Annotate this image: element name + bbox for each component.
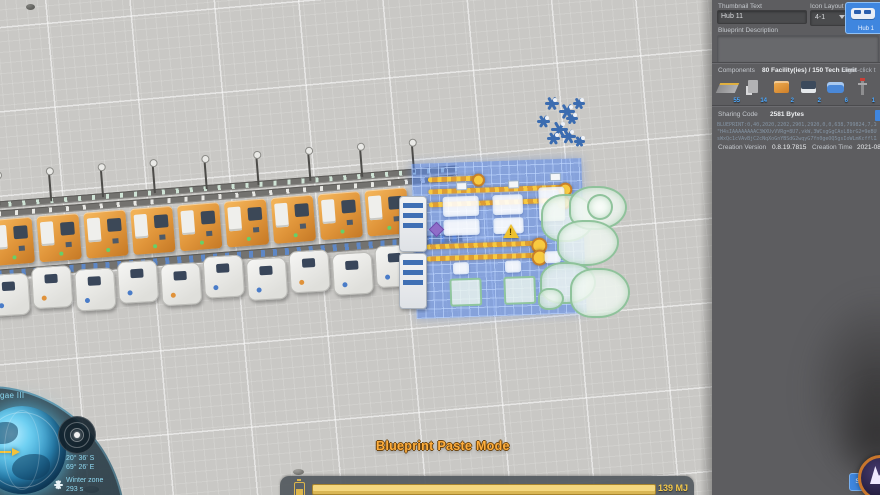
ghost-blob — [570, 268, 630, 318]
factory-building — [74, 267, 116, 311]
ghost-building — [443, 219, 480, 236]
code-line: "H4sIAAAAAAAAC3WXUvVVRg=8U7,vkW,3WCsgGgC… — [717, 129, 877, 136]
energy-fill — [312, 484, 656, 495]
factory-building — [332, 252, 374, 296]
smelter-tile[interactable]: 2 — [796, 77, 823, 97]
assembling-machine-icon — [774, 81, 789, 93]
smelter-icon — [801, 81, 816, 93]
blue-plant — [537, 113, 550, 126]
ghost-sorter — [550, 173, 561, 181]
components-hint: Right-click t — [842, 67, 876, 74]
component-count: 1 — [872, 98, 875, 104]
divider — [712, 105, 880, 106]
sharing-code-size: 2581 Bytes — [770, 111, 804, 118]
assembling-machine — [224, 198, 269, 247]
assembling-machine — [177, 202, 222, 251]
ghost-belt — [428, 176, 478, 183]
paste-mode-label: Blueprint Paste Mode — [376, 439, 510, 453]
component-count: 2 — [818, 98, 821, 104]
zone-label: Winter zone — [66, 476, 103, 485]
sharing-code-label: Sharing Code — [718, 111, 758, 118]
ghost-building — [453, 262, 469, 275]
logistics-distributor-icon — [827, 82, 844, 93]
ghost-building-cluster — [538, 256, 630, 322]
code-line: sWxQc1cVAvBjC2cNqXoGnYBSdG2wqyG7Yn0geOQ5… — [717, 136, 877, 143]
ghost-belt-endpoint — [472, 173, 485, 186]
ghost-sorter — [508, 180, 519, 188]
assembling-machine — [83, 209, 128, 258]
ghost-building — [505, 260, 521, 273]
conveyor-belt-tile[interactable]: 55 — [715, 77, 742, 97]
ghost-blob — [538, 288, 564, 310]
latitude: 20° 36' S — [66, 454, 94, 463]
tesla-tower-icon — [861, 78, 864, 95]
panel-shadow — [700, 0, 712, 495]
description-label: Blueprint Description — [718, 27, 778, 34]
energy-value: 139 MJ — [658, 483, 688, 493]
logistics-station — [399, 253, 427, 309]
blue-plant — [573, 96, 585, 108]
player-position-marker — [12, 448, 20, 456]
assembling-machine — [0, 217, 35, 266]
energy-bar: 139 MJ — [280, 476, 694, 495]
factory-building — [160, 262, 202, 306]
landmass — [12, 454, 50, 480]
factory-building — [117, 260, 159, 304]
thumbnail-text-label: Thumbnail Text — [718, 3, 762, 10]
warning-icon — [503, 224, 519, 238]
icon-layout-dropdown[interactable]: 4-1 — [810, 10, 849, 26]
assembling-machine — [318, 191, 363, 240]
blueprint-icon-button[interactable]: Hub 1 — [845, 2, 880, 34]
icon-layout-label: Icon Layout — [810, 3, 844, 10]
icon-layout-value: 4-1 — [815, 14, 825, 21]
components-label: Components — [718, 67, 755, 74]
zone-time: 293 s — [66, 485, 103, 494]
code-line: BLUEPRINT:0,40,2020,2202,2901,2920,0,0,6… — [717, 122, 877, 129]
sorter-icon — [748, 80, 758, 93]
season-icon — [54, 480, 63, 489]
planet-name: gae III — [0, 391, 24, 400]
ghost-belt — [427, 253, 539, 262]
assembling-machine — [36, 213, 81, 262]
component-count: 55 — [733, 98, 740, 104]
star-dot — [74, 432, 80, 438]
ghost-belt — [426, 241, 538, 250]
factory-building — [0, 273, 31, 317]
battery-icon — [294, 482, 305, 495]
component-list: 55142261 — [715, 77, 879, 101]
logistics-distributor-tile[interactable]: 6 — [823, 77, 850, 97]
ghost-building — [492, 194, 523, 215]
factory-building — [202, 254, 244, 298]
thumbnail-text-input[interactable] — [717, 10, 807, 24]
divider — [712, 62, 880, 63]
game-viewport[interactable]: Blueprint Paste Mode 139 MJ gae III 20° … — [0, 0, 880, 495]
sorter-tile[interactable]: 14 — [742, 77, 769, 97]
creation-version-label: Creation Version — [718, 144, 766, 151]
assembling-machine-tile[interactable]: 2 — [769, 77, 796, 97]
conveyor-belt-icon — [716, 83, 739, 93]
logistics-bot-icon — [851, 8, 875, 19]
component-count: 2 — [791, 98, 794, 104]
factory-building — [288, 249, 330, 293]
coordinates: 20° 36' S 69° 26' E — [66, 454, 94, 472]
ghost-blob — [587, 194, 613, 220]
ghost-building — [443, 196, 480, 217]
orbit-widget — [58, 416, 96, 454]
ghost-sorter — [456, 182, 467, 190]
landmass — [0, 422, 18, 444]
blue-plant — [547, 130, 560, 143]
creation-time-label: Creation Time — [812, 144, 852, 151]
rock — [293, 469, 304, 475]
blueprint-inspector-panel: Thumbnail Text Icon Layout 4-1 Hub 1 Blu… — [712, 0, 880, 495]
ghost-building — [503, 276, 536, 305]
creation-version-value: 0.8.19.7815 — [772, 144, 806, 151]
blue-plant — [545, 95, 559, 109]
description-textarea[interactable] — [717, 35, 879, 63]
rock — [26, 4, 35, 10]
creation-time-value: 2021-08-03 1 — [857, 144, 880, 151]
copy-code-button[interactable] — [875, 110, 880, 121]
component-count: 6 — [845, 98, 848, 104]
factory-building — [31, 265, 73, 309]
blueprint-icon-label: Hub 1 — [846, 26, 880, 32]
longitude: 69° 26' E — [66, 463, 94, 472]
assembling-machine — [130, 206, 175, 255]
assembling-machine — [271, 195, 316, 244]
factory-building — [246, 257, 288, 301]
component-count: 14 — [760, 98, 767, 104]
tesla-tower-tile[interactable]: 1 — [850, 77, 877, 97]
sharing-code-text: BLUEPRINT:0,40,2020,2202,2901,2920,0,0,6… — [717, 122, 877, 143]
ghost-building — [449, 278, 482, 307]
logistics-station — [399, 196, 427, 252]
climate-zone: Winter zone 293 s — [66, 476, 103, 494]
blue-plant — [574, 134, 585, 145]
blue-plant — [566, 111, 578, 123]
